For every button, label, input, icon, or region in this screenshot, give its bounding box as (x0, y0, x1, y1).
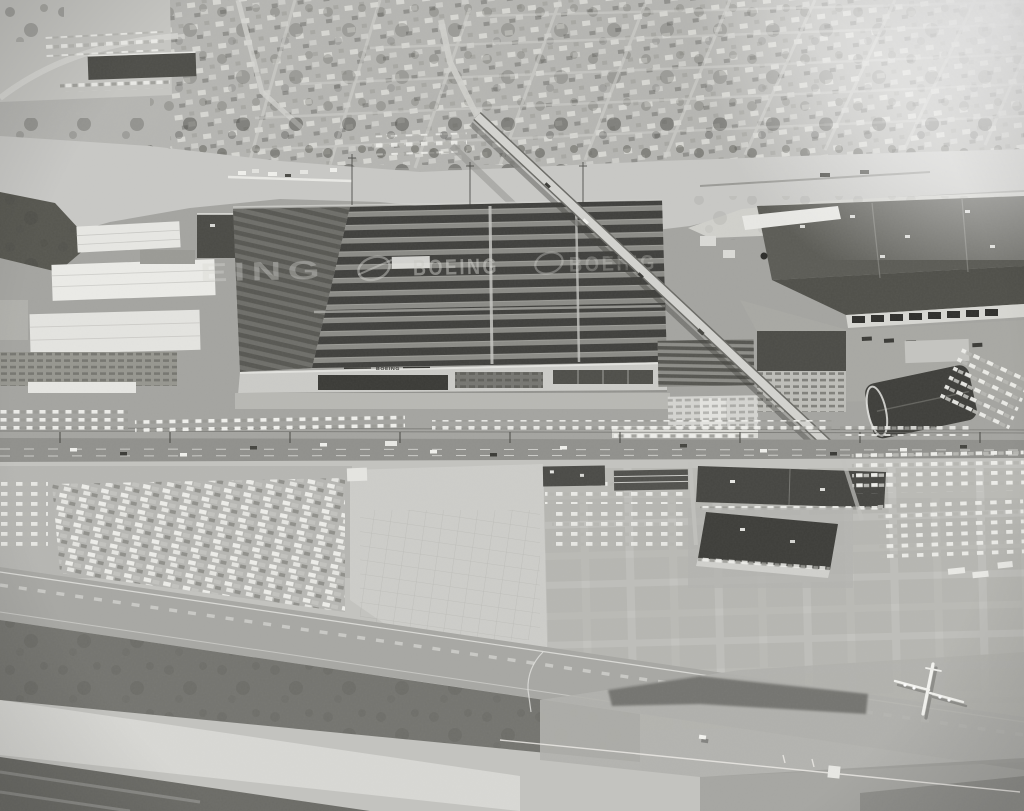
aerial-photo: EING BOEING BOEING BOEING (0, 0, 1024, 811)
vignette (0, 0, 1024, 811)
